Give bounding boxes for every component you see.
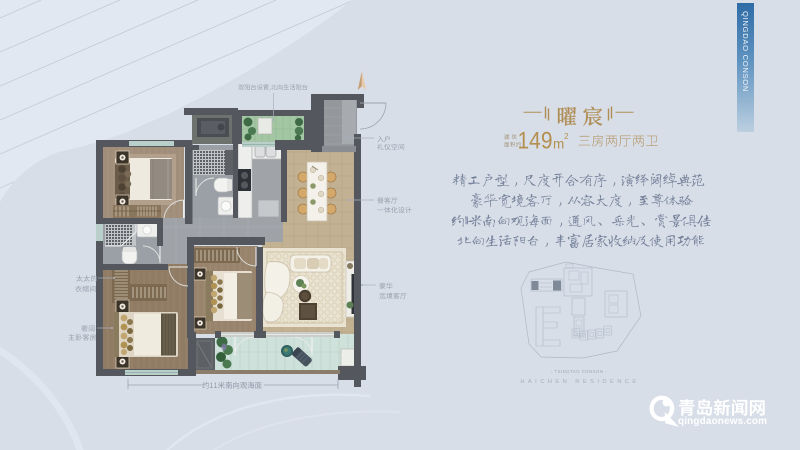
svg-text:QINGDAO CONSON: QINGDAO CONSON (741, 11, 750, 92)
svg-text:- TSINGTAO CONSON -: - TSINGTAO CONSON - (551, 369, 607, 374)
svg-text:m: m (553, 137, 564, 152)
svg-text:2: 2 (564, 132, 569, 141)
svg-text:qingdaonews.com: qingdaonews.com (678, 416, 767, 427)
svg-text:149: 149 (518, 128, 553, 155)
svg-text:HAICHEN RESIDENCE: HAICHEN RESIDENCE (520, 379, 639, 385)
